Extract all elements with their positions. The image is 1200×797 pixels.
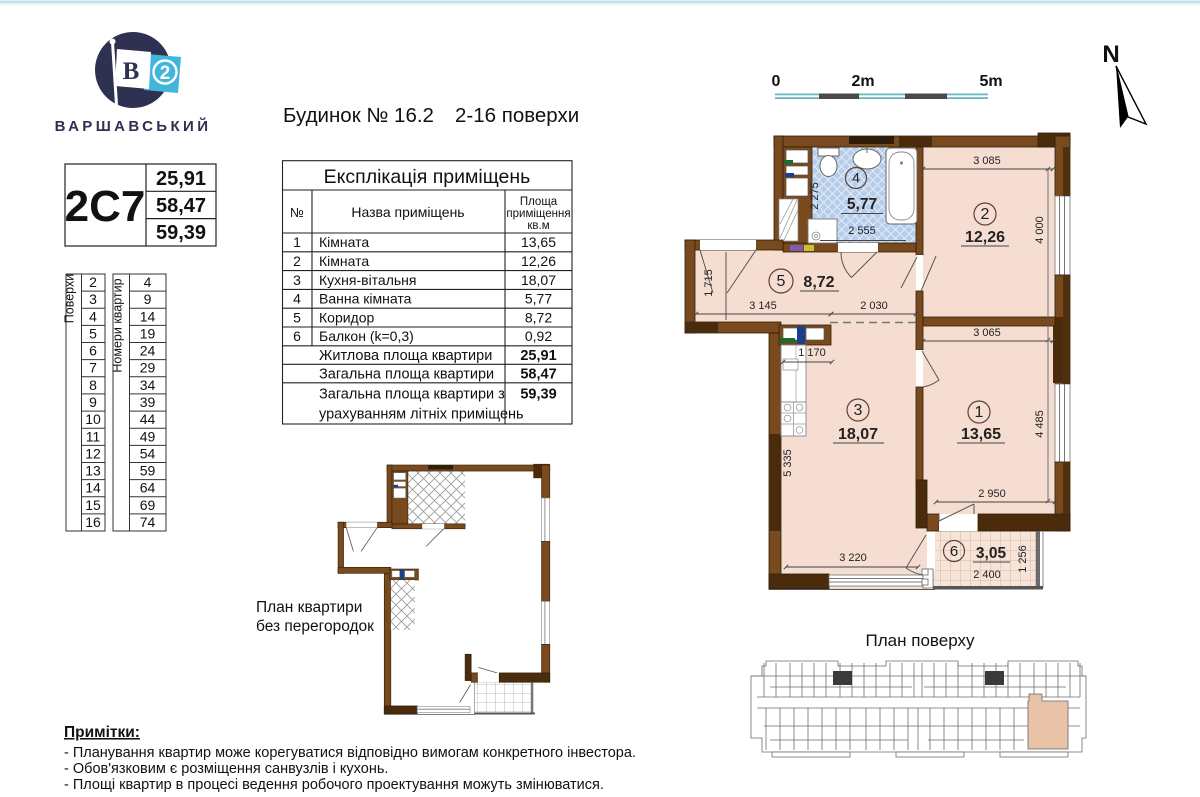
svg-text:2 030: 2 030: [860, 300, 888, 312]
svg-text:59,39: 59,39: [520, 386, 556, 402]
svg-text:29: 29: [140, 360, 156, 376]
svg-text:Площа: Площа: [520, 196, 558, 208]
svg-text:25,91: 25,91: [156, 168, 206, 190]
svg-text:5: 5: [777, 273, 786, 290]
svg-text:13: 13: [85, 463, 101, 479]
svg-text:2: 2: [293, 253, 301, 269]
svg-text:- Площі квартир в процесі веде: - Площі квартир в процесі ведення робочо…: [64, 777, 604, 792]
svg-text:8,72: 8,72: [803, 274, 834, 291]
svg-text:9: 9: [144, 291, 152, 307]
svg-text:5,77: 5,77: [847, 196, 877, 213]
svg-text:1: 1: [975, 404, 984, 421]
svg-text:3: 3: [854, 402, 863, 419]
svg-text:0,92: 0,92: [525, 328, 552, 344]
svg-text:Експлікація приміщень: Експлікація приміщень: [324, 166, 531, 188]
svg-text:12,26: 12,26: [965, 229, 1005, 246]
svg-text:16: 16: [85, 514, 101, 530]
svg-text:2: 2: [89, 274, 97, 290]
svg-text:25,91: 25,91: [520, 348, 556, 364]
svg-text:19: 19: [140, 325, 156, 341]
svg-text:13,65: 13,65: [961, 426, 1001, 443]
svg-text:12: 12: [85, 445, 101, 461]
svg-text:3 220: 3 220: [839, 552, 867, 564]
svg-text:14: 14: [85, 480, 101, 496]
svg-text:2С7: 2С7: [65, 182, 146, 231]
svg-text:59: 59: [140, 463, 156, 479]
svg-text:5: 5: [89, 325, 97, 341]
svg-text:кв.м: кв.м: [527, 220, 549, 232]
svg-text:0: 0: [772, 73, 781, 90]
svg-text:13,65: 13,65: [521, 234, 556, 250]
svg-text:4: 4: [144, 274, 152, 290]
svg-text:Загальна площа квартири: Загальна площа квартири: [319, 367, 494, 383]
svg-text:приміщення: приміщення: [506, 208, 570, 220]
svg-text:ВАРШАВСЬКИЙ: ВАРШАВСЬКИЙ: [55, 117, 212, 135]
svg-text:15: 15: [85, 497, 101, 513]
svg-text:1 170: 1 170: [798, 347, 826, 359]
svg-text:12,26: 12,26: [521, 253, 556, 269]
svg-text:- Обов'язковим є розміщення са: - Обов'язковим є розміщення санвузлів і …: [64, 761, 388, 777]
svg-text:В: В: [123, 58, 140, 85]
svg-text:44: 44: [140, 411, 156, 427]
svg-text:39: 39: [140, 394, 156, 410]
svg-text:урахуванням літніх приміщень: урахуванням літніх приміщень: [319, 406, 524, 422]
svg-text:2m: 2m: [851, 73, 874, 90]
svg-text:Номери квартир: Номери квартир: [111, 278, 125, 372]
svg-text:Примітки:: Примітки:: [64, 724, 140, 741]
svg-text:58,47: 58,47: [156, 195, 206, 217]
svg-text:- Планування квартир може коре: - Планування квартир може корегуватися в…: [64, 745, 636, 761]
svg-text:5: 5: [293, 309, 301, 325]
svg-text:План квартири: План квартири: [256, 599, 362, 616]
svg-text:4 485: 4 485: [1034, 410, 1046, 438]
svg-text:58,47: 58,47: [520, 367, 556, 383]
svg-text:8: 8: [89, 377, 97, 393]
svg-text:49: 49: [140, 428, 156, 444]
svg-text:5m: 5m: [979, 73, 1002, 90]
svg-text:3 065: 3 065: [973, 327, 1001, 339]
svg-text:74: 74: [140, 514, 156, 530]
svg-text:План поверху: План поверху: [866, 631, 975, 650]
svg-text:Кімната: Кімната: [319, 234, 369, 250]
svg-text:3 145: 3 145: [749, 300, 777, 312]
svg-text:9: 9: [89, 394, 97, 410]
svg-text:Коридор: Коридор: [319, 309, 375, 325]
svg-text:Кімната: Кімната: [319, 253, 369, 269]
svg-text:5 335: 5 335: [782, 449, 794, 477]
svg-text:3 085: 3 085: [973, 155, 1001, 167]
svg-text:14: 14: [140, 308, 156, 324]
svg-text:11: 11: [86, 428, 101, 444]
svg-text:Ванна кімната: Ванна кімната: [319, 291, 412, 307]
svg-text:3: 3: [89, 291, 97, 307]
svg-text:6: 6: [89, 343, 97, 359]
svg-text:4: 4: [293, 291, 301, 307]
svg-text:4: 4: [852, 170, 860, 186]
svg-text:1 256: 1 256: [1017, 545, 1029, 573]
svg-text:24: 24: [140, 343, 156, 359]
svg-text:69: 69: [140, 497, 156, 513]
svg-text:2 555: 2 555: [848, 225, 876, 237]
svg-text:18,07: 18,07: [521, 272, 556, 288]
svg-text:4: 4: [89, 308, 97, 324]
svg-text:6: 6: [950, 543, 958, 560]
svg-text:Загальна площа квартири з: Загальна площа квартири з: [319, 386, 505, 402]
svg-text:N: N: [1102, 41, 1119, 68]
svg-text:2 950: 2 950: [978, 488, 1006, 500]
svg-text:Назва приміщень: Назва приміщень: [351, 204, 464, 220]
svg-text:2-16 поверхи: 2-16 поверхи: [455, 104, 579, 127]
svg-text:Кухня-вітальня: Кухня-вітальня: [319, 272, 417, 288]
svg-text:Балкон (k=0,3): Балкон (k=0,3): [319, 328, 414, 344]
svg-text:8,72: 8,72: [525, 309, 552, 325]
svg-text:54: 54: [140, 445, 156, 461]
svg-text:10: 10: [85, 411, 101, 427]
svg-text:2 400: 2 400: [973, 569, 1001, 581]
svg-text:7: 7: [89, 360, 97, 376]
svg-text:3: 3: [293, 272, 301, 288]
svg-text:6: 6: [293, 328, 301, 344]
svg-text:1 715: 1 715: [703, 269, 715, 297]
svg-text:5,77: 5,77: [525, 291, 552, 307]
svg-text:3,05: 3,05: [976, 545, 1007, 562]
svg-text:59,39: 59,39: [156, 222, 206, 244]
svg-text:Житлова площа квартири: Житлова площа квартири: [319, 348, 492, 364]
svg-text:64: 64: [140, 480, 156, 496]
svg-text:2 275: 2 275: [809, 182, 821, 210]
svg-text:без перегородок: без перегородок: [256, 618, 374, 635]
svg-text:18,07: 18,07: [838, 426, 878, 443]
svg-text:Будинок № 16.2: Будинок № 16.2: [283, 104, 434, 127]
svg-text:1: 1: [293, 234, 301, 250]
svg-text:34: 34: [140, 377, 156, 393]
svg-text:4 000: 4 000: [1034, 216, 1046, 244]
svg-text:2: 2: [981, 206, 990, 223]
svg-text:Поверхи: Поверхи: [63, 274, 77, 323]
svg-text:2: 2: [160, 63, 171, 84]
svg-text:№: №: [290, 205, 304, 220]
